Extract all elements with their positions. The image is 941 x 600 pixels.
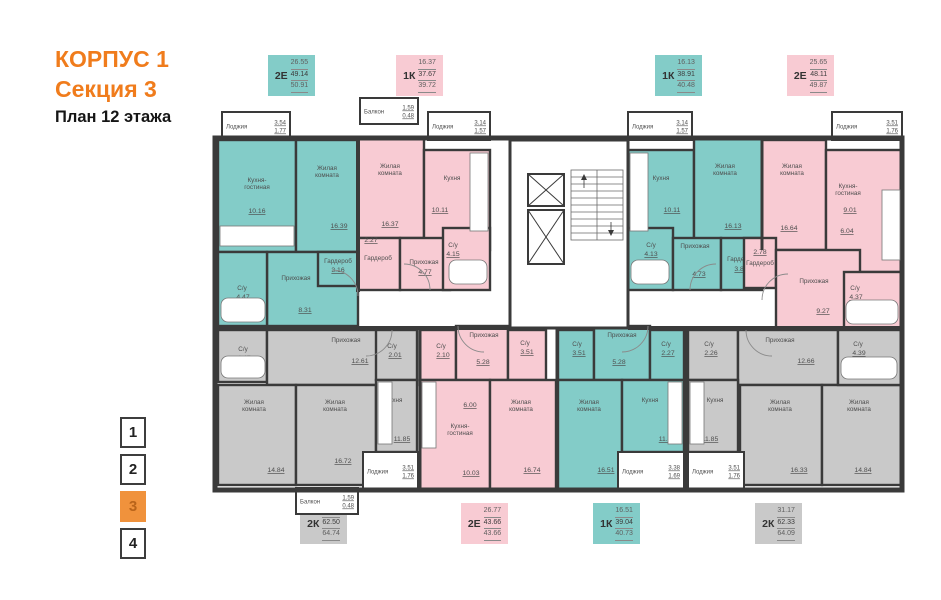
room-area: 6.00 [463, 402, 476, 409]
room-b3-living: Жилаякомната16.51 [558, 380, 622, 490]
room-area: 3.51 [572, 350, 585, 357]
room-a2-living: Жилаякомната16.37 [358, 138, 424, 238]
loggia-Балкон: Балкон1.590.48 [360, 98, 418, 124]
room-label: Прихожая [409, 259, 438, 266]
loggia-area: 1.59 [342, 496, 354, 502]
room-area: 3.51 [520, 349, 533, 356]
room-area: 4.39 [852, 350, 865, 357]
room-a2-wardrobe: 2.27Гардероб [358, 237, 400, 290]
room-label: Прихожая [331, 337, 360, 344]
room-label: Жилаякомната [780, 163, 804, 177]
kitchen-counter-icon [378, 382, 392, 444]
section-button-3[interactable]: 3 [120, 491, 146, 522]
loggia-area: 3.14 [474, 121, 486, 127]
room-area: 8.31 [298, 307, 311, 314]
unit-area-value: 64.09 [777, 529, 795, 541]
room-b4-living1: Жилаякомната16.33 [740, 385, 822, 485]
loggia-label: Лоджия [622, 470, 643, 476]
loggia-area: 0.48 [402, 114, 414, 120]
unit-card-1К[interactable]: 1К16.3737.6739.72 [396, 55, 443, 96]
plan-title: КОРПУС 1 Секция 3 План 12 этажа [55, 44, 171, 127]
room-area: 16.33 [790, 467, 807, 474]
room-area: 6.04 [840, 228, 853, 235]
room-area: 10.11 [432, 207, 449, 214]
unit-type: 1К [662, 70, 674, 82]
room-label: Жилаякомната [378, 163, 402, 177]
room-label: С/у [853, 341, 863, 348]
kitchen-counter-icon [422, 382, 436, 448]
room-area: 16.13 [724, 223, 741, 230]
loggia-area: 3.38 [668, 466, 680, 472]
room-label: С/у [704, 341, 714, 348]
unit-card-2Е[interactable]: 2Е25.6548.1149.87 [787, 55, 834, 96]
room-label: Кухня-гостиная [447, 423, 473, 437]
room-area: 2.78 [753, 249, 766, 256]
unit-area-value: 37.67 [418, 70, 436, 82]
room-area: 16.72 [334, 458, 351, 465]
elevator-1-icon [528, 174, 564, 206]
unit-areas: 16.1338.9140.48 [677, 58, 695, 93]
room-b4-living2: Жилаякомната14.84 [822, 385, 902, 485]
loggia-label: Лоджия [367, 470, 388, 476]
room-label: Гардероб [324, 257, 352, 265]
bathtub-icon [221, 298, 265, 322]
loggia-area: 1.69 [668, 474, 680, 480]
room-area: 14.84 [854, 467, 871, 474]
room-area: 9.27 [816, 308, 829, 315]
kitchen-counter-icon [882, 190, 900, 260]
room-label: Кухня-гостиная [835, 183, 861, 197]
room-label: Прихожая [680, 243, 709, 250]
kitchen-counter-icon [220, 226, 294, 246]
room-label: Жилаякомната [323, 399, 347, 413]
loggia-area: 3.51 [886, 121, 898, 127]
section-button-4[interactable]: 4 [120, 528, 146, 559]
room-area: 2.27 [364, 237, 377, 244]
room-label: Жилаякомната [713, 163, 737, 177]
room-label: С/у [646, 242, 656, 249]
room-label: Гардероб [746, 259, 774, 267]
room-area: 14.84 [267, 467, 284, 474]
room-area: 10.11 [664, 207, 681, 214]
room-b2-hall: Прихожая5.28 [456, 326, 508, 380]
room-label: Кухня-гостиная [244, 177, 270, 191]
loggia-area: 3.51 [728, 466, 740, 472]
loggia-label: Лоджия [836, 125, 857, 131]
room-label: С/у [850, 285, 860, 292]
room-label: С/у [520, 340, 530, 347]
loggia-area: 1.59 [402, 106, 414, 112]
elevator-2-icon [528, 210, 564, 264]
loggia-label: Балкон [300, 500, 320, 506]
room-area: 5.28 [612, 359, 625, 366]
loggia-label: Лоджия [632, 125, 653, 131]
room-b4-bath1: С/у2.26 [688, 330, 738, 380]
bathtub-icon [841, 357, 897, 379]
room-a1-living: Жилаякомната16.39 [296, 140, 358, 252]
loggia-area: 1.76 [402, 474, 414, 480]
room-b3-bath2: С/у2.27 [650, 330, 684, 380]
room-area: 4.73 [692, 271, 705, 278]
kitchen-counter-icon [668, 382, 682, 444]
room-area: 12.61 [351, 358, 368, 365]
room-area: 10.16 [248, 208, 265, 215]
room-area: 2.27 [661, 350, 674, 357]
bathtub-icon [449, 260, 487, 284]
room-label: Прихожая [799, 278, 828, 285]
room-b1-living1: Жилаякомната14.84 [218, 385, 296, 485]
kitchen-counter-icon [470, 153, 488, 231]
bathtub-icon [846, 300, 898, 324]
room-label: Жилаякомната [315, 165, 339, 179]
loggia-area: 1.57 [676, 129, 688, 135]
room-label: Кухня [444, 175, 461, 182]
loggia-area: 3.54 [274, 121, 286, 127]
room-area: 16.74 [523, 467, 540, 474]
building-name: КОРПУС 1 [55, 44, 171, 74]
loggia-label: Лоджия [226, 125, 247, 131]
unit-area-value: 40.73 [615, 529, 633, 541]
room-label: С/у [436, 343, 446, 350]
room-label: Кухня [642, 397, 659, 404]
room-label: Прихожая [607, 332, 636, 339]
room-area: 2.26 [704, 350, 717, 357]
loggia-label: Балкон [364, 110, 384, 116]
room-area: 5.28 [476, 359, 489, 366]
room-label: Жилаякомната [847, 399, 871, 413]
section-button-2[interactable]: 2 [120, 454, 146, 485]
unit-area-value: 25.65 [810, 58, 828, 70]
loggia-area: 1.77 [274, 129, 286, 135]
room-b2-bath1: С/у2.10 [420, 330, 456, 380]
room-label: Гардероб [364, 254, 392, 262]
room-label: С/у [572, 341, 582, 348]
room-label: С/у [448, 242, 458, 249]
room-area: 11.85 [394, 436, 411, 443]
room-b1-bath2: С/у2.01 [376, 330, 417, 380]
unit-area-value: 16.13 [677, 58, 695, 70]
elevator-core [510, 140, 628, 328]
unit-areas: 25.6548.1149.87 [810, 58, 828, 93]
bathtub-icon [221, 356, 265, 378]
loggia-Лоджия: Лоджия3.511.76 [688, 452, 744, 490]
room-label: С/у [387, 343, 397, 350]
bathtub-icon [631, 260, 669, 284]
stairs-icon [571, 170, 623, 240]
unit-area-value: 40.48 [677, 81, 695, 93]
room-label: Кухня [653, 175, 670, 182]
floor-name: План 12 этажа [55, 108, 171, 127]
loggia-area: 1.57 [474, 129, 486, 135]
unit-area-value: 48.11 [810, 70, 828, 82]
loggia-area: 0.48 [342, 504, 354, 510]
unit-area-value: 64.74 [322, 529, 340, 541]
loggia-label: Лоджия [692, 470, 713, 476]
loggia-label: Лоджия [432, 125, 453, 131]
section-button-1[interactable]: 1 [120, 417, 146, 448]
loggia-area: 1.76 [728, 474, 740, 480]
unit-type: 1К [403, 70, 415, 82]
room-a3-living: Жилаякомната16.13 [694, 138, 762, 240]
room-label: Жилаякомната [768, 399, 792, 413]
loggia-Лоджия: Лоджия3.381.69 [618, 452, 684, 490]
unit-type: 2Е [794, 70, 807, 82]
room-area: 12.66 [797, 358, 814, 365]
room-label: С/у [238, 346, 248, 353]
room-area: 10.03 [462, 470, 479, 477]
unit-areas: 16.3737.6739.72 [418, 58, 436, 93]
room-a1-wardrobe: Гардероб3.16 [318, 252, 358, 286]
room-label: С/у [237, 285, 247, 292]
room-label: С/у [661, 341, 671, 348]
room-label: Прихожая [765, 337, 794, 344]
kitchen-counter-icon [690, 382, 704, 444]
room-b3-bath1: С/у3.51 [558, 330, 594, 380]
room-a4-living: Жилаякомната16.64 [762, 140, 826, 250]
room-label: Жилаякомната [577, 399, 601, 413]
unit-area-value: 43.66 [484, 529, 502, 541]
room-label: Жилаякомната [242, 399, 266, 413]
room-area: 2.01 [388, 352, 401, 359]
room-label: Прихожая [281, 275, 310, 282]
room-label: Прихожая [469, 332, 498, 339]
room-area: 16.39 [330, 223, 347, 230]
room-area: 4.13 [644, 251, 657, 258]
unit-areas: 26.5549.1450.91 [291, 58, 309, 93]
room-b2-bath2: С/у3.51 [508, 330, 546, 380]
loggia-Лоджия: Лоджия3.511.76 [363, 452, 418, 490]
room-b4-hall: Прихожая12.66 [738, 330, 838, 385]
room-b3-hall: Прихожая5.28 [594, 326, 650, 380]
room-area: 9.01 [843, 207, 856, 214]
unit-area-value: 50.91 [291, 81, 309, 93]
room-area: 16.64 [780, 225, 797, 232]
unit-card-2Е[interactable]: 2Е26.5549.1450.91 [268, 55, 315, 96]
section-name: Секция 3 [55, 74, 171, 104]
unit-area-value: 38.91 [677, 70, 695, 82]
room-area: 2.10 [436, 352, 449, 359]
unit-type: 2Е [275, 70, 288, 82]
loggia-area: 1.76 [886, 129, 898, 135]
loggia-area: 3.51 [402, 466, 414, 472]
loggia-area: 3.14 [676, 121, 688, 127]
room-area: 4.15 [446, 251, 459, 258]
unit-area-value: 49.14 [291, 70, 309, 82]
unit-area-value: 49.87 [810, 81, 828, 93]
room-b2-living: Жилаякомната16.74 [490, 380, 556, 490]
room-label: Кухня [707, 397, 724, 404]
room-area: 16.37 [381, 221, 398, 228]
kitchen-counter-icon [630, 153, 648, 231]
floor-plan: Кухня-гостиная10.166.65Жилаякомната16.39… [210, 95, 905, 520]
unit-area-value: 26.55 [291, 58, 309, 70]
unit-card-1К[interactable]: 1К16.1338.9140.48 [655, 55, 702, 96]
unit-area-value: 16.37 [418, 58, 436, 70]
unit-area-value: 39.72 [418, 81, 436, 93]
room-area: 16.51 [597, 467, 614, 474]
room-label: Жилаякомната [509, 399, 533, 413]
